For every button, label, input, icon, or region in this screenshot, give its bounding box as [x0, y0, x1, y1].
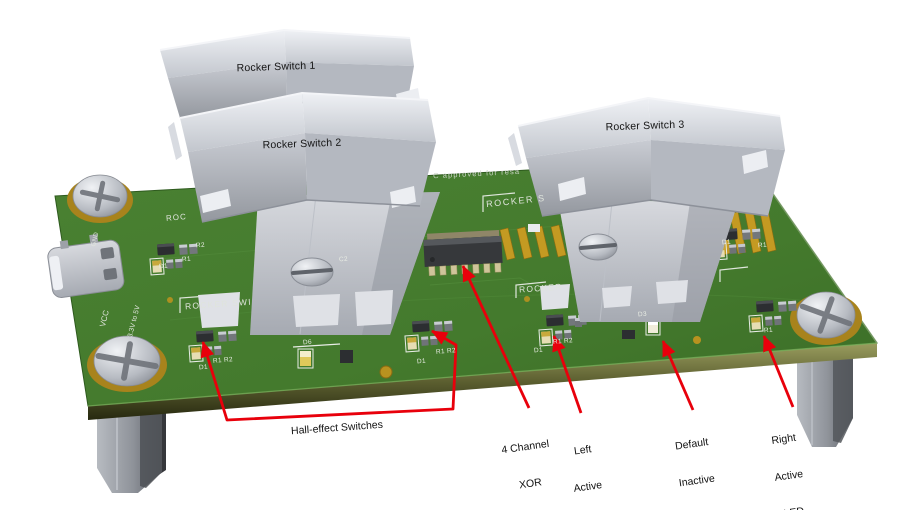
- designator: D3: [638, 311, 647, 319]
- designator: C2: [339, 256, 348, 264]
- designator: D1: [417, 358, 426, 366]
- designator: D1: [722, 239, 731, 247]
- default-inactive-line1: Default: [657, 433, 726, 455]
- designator: D1: [199, 364, 208, 372]
- designator: R1: [758, 242, 767, 250]
- right-active-line1: Right: [752, 429, 815, 450]
- right-active-line3: LED: [762, 502, 825, 510]
- designator: R2: [196, 242, 205, 250]
- default-inactive-line2: Inactive: [662, 470, 731, 492]
- designator: D1: [159, 263, 168, 271]
- right-active-line2: Active: [757, 466, 820, 487]
- designator: R1: [182, 256, 191, 264]
- pcb-annotated-render: Rocker Switch 1 Rocker Switch 2 Rocker S…: [0, 0, 921, 510]
- left-active-line2: Active: [556, 477, 619, 498]
- designator: R1: [764, 327, 773, 335]
- silkscreen-rocker1-header: ROC: [166, 212, 187, 223]
- designator: D6: [303, 339, 312, 347]
- designator: D1: [534, 347, 543, 355]
- rocker-switch-3: [508, 98, 785, 216]
- left-active-line1: Left: [551, 440, 614, 461]
